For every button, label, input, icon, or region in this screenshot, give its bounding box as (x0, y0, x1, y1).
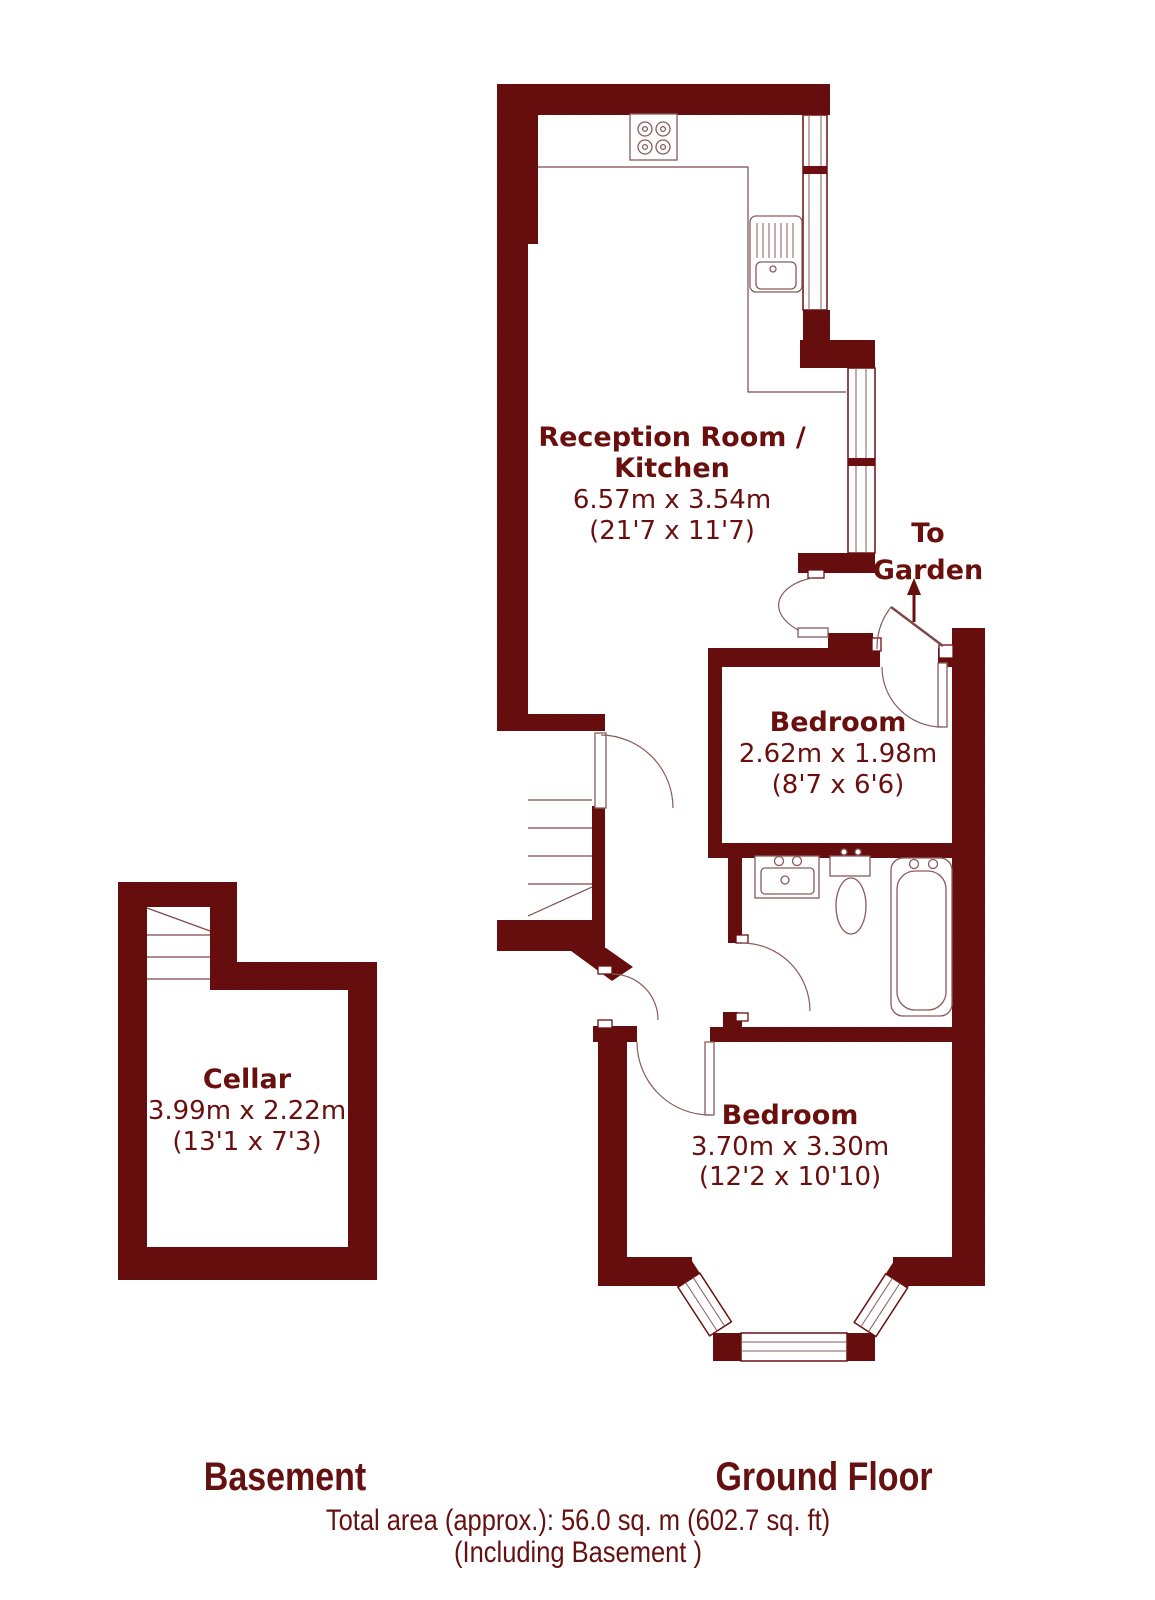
reception-kitchen-title-1: Reception Room / (538, 422, 806, 453)
bedroom-small-dims-metric: 2.62m x 1.98m (739, 739, 937, 769)
bedroom-small-label: Bedroom 2.62m x 1.98m (8'7 x 6'6) (739, 707, 937, 800)
stairs-basement (147, 908, 210, 979)
bedroom-large-label: Bedroom 3.70m x 3.30m (12'2 x 10'10) (691, 1100, 889, 1192)
bedroom-large-title: Bedroom (722, 1100, 859, 1131)
garden-door (877, 607, 943, 649)
cellar-dims-imperial: (13'1 x 7'3) (172, 1127, 321, 1157)
basement-floor-label: Basement (204, 1453, 366, 1498)
ground-floor-label: Ground Floor (715, 1453, 932, 1498)
hob-icon (630, 114, 677, 160)
total-area-text: Total area (approx.): 56.0 sq. m (602.7 … (326, 1503, 830, 1536)
window-right-upper (803, 115, 827, 310)
reception-kitchen-label: Reception Room / Kitchen 6.57m x 3.54m (… (538, 422, 806, 546)
basin-icon (755, 856, 819, 898)
reception-kitchen-title-2: Kitchen (614, 453, 730, 484)
to-garden-label: To Garden (873, 518, 984, 586)
floorplan-canvas: Reception Room / Kitchen 6.57m x 3.54m (… (0, 0, 1155, 1600)
toilet-icon (830, 849, 870, 934)
sink-drainer-icon (750, 216, 802, 292)
kitchen-lobby-door (779, 570, 828, 637)
including-basement-text: (Including Basement ) (454, 1535, 702, 1568)
floorplan-page: Reception Room / Kitchen 6.57m x 3.54m (… (0, 0, 1155, 1600)
bedroom-large-door (637, 1042, 714, 1115)
bathroom-door (736, 935, 810, 1021)
cellar-title: Cellar (203, 1064, 292, 1095)
stairs-ground (528, 800, 592, 916)
bedroom-large-dims-metric: 3.70m x 3.30m (691, 1132, 889, 1162)
bathtub-icon (891, 858, 952, 1016)
window-right-lower (848, 368, 875, 553)
cellar-dims-metric: 3.99m x 2.22m (148, 1096, 346, 1126)
reception-kitchen-dims-metric: 6.57m x 3.54m (573, 485, 771, 515)
bedroom-large-dims-imperial: (12'2 x 10'10) (699, 1162, 881, 1192)
cellar-label: Cellar 3.99m x 2.22m (13'1 x 7'3) (148, 1064, 346, 1157)
bedroom-small-dims-imperial: (8'7 x 6'6) (772, 770, 905, 800)
bedroom-small-title: Bedroom (770, 707, 907, 738)
bay-window (668, 1258, 917, 1361)
to-garden-line-1: To (911, 518, 944, 549)
reception-kitchen-dims-imperial: (21'7 x 11'7) (589, 516, 755, 546)
to-garden-line-2: Garden (873, 555, 984, 586)
stairwell-door (595, 733, 673, 808)
